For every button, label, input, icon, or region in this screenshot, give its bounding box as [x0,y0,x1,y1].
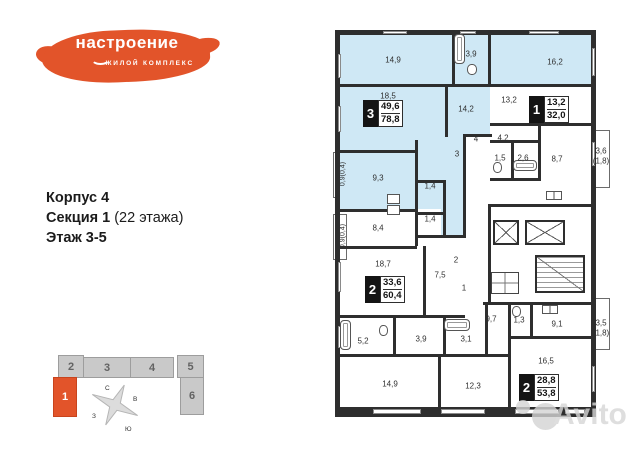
bedroom-top-left-label: 14,9 [385,56,401,65]
corridor-2-label: 2 [454,256,458,265]
room-9-3-label: 9,3 [372,174,383,183]
balcony-3-5-reduced-label: (1,8) [593,329,609,338]
building-diagram: 2 3 4 5 1 6 С В З Ю [35,348,220,428]
compass-icon: С В З Ю [85,378,145,434]
floor-plan: 3 49,6 78,8 1 13,2 32,0 2 33,6 60,4 2 28… [333,14,613,438]
areas: 28,8 53,8 [534,374,559,401]
floor-value: Этаж 3-5 [46,230,107,246]
wall [335,246,417,249]
complex-logo: настроение ЖИЛОЙ КОМПЛЕКС [38,20,216,92]
corridor-1-label: 1 [462,284,466,293]
floor-line: Этаж 3-5 [46,228,183,248]
avito-logo-dot-small [516,400,530,414]
appliance-icon [387,205,400,215]
areas: 33,6 60,4 [380,276,405,303]
living-area: 33,6 [383,277,402,290]
kitchen-8-7-label: 8,7 [551,155,562,164]
wall [335,354,510,357]
listing-image: настроение ЖИЛОЙ КОМПЛЕКС Корпус 4 Секци… [0,0,640,452]
living-area: 49,6 [381,101,400,114]
wall [530,302,533,339]
wall [485,305,488,357]
bathroom-top-label: 3,9 [465,50,476,59]
room-13-2-label: 13,2 [501,96,517,105]
complex-subtitle: ЖИЛОЙ КОМПЛЕКС [106,60,194,67]
section-note: (22 этажа) [110,210,183,226]
balcony-3-5-label: 3,5 [595,319,606,328]
utility-shaft [491,272,519,294]
compass-south: Ю [125,426,132,433]
compass-north: С [105,385,110,392]
wall [508,336,596,339]
room-top-right-label: 16,2 [547,58,563,67]
bathtub-icon [444,319,470,331]
bathtub-icon [340,320,351,350]
rooms-count: 1 [529,96,544,123]
apartment-badge-2room-b: 2 28,8 53,8 [519,374,559,401]
total-area: 78,8 [381,114,400,126]
room-9-7-label: 9,7 [485,315,496,324]
window-mark [338,106,341,132]
wall [423,246,426,318]
section-1-highlighted: 1 [53,377,77,417]
location-info: Корпус 4 Секция 1 (22 этажа) Этаж 3-5 [46,188,183,248]
areas: 49,6 78,8 [378,100,403,127]
section-4: 4 [130,357,174,378]
window-mark [373,409,421,414]
kitchen-9-1-label: 9,1 [551,320,562,329]
balcony-3-6-label: 3,6 [595,147,606,156]
window-mark [441,409,485,414]
window-mark [338,54,341,78]
room-16-5-label: 16,5 [538,357,554,366]
elevator-1 [493,220,519,245]
section-2: 2 [58,355,84,378]
bath-2-6-label: 2,6 [517,154,528,163]
staircase [535,255,585,293]
section-3: 3 [83,357,131,378]
stove-icon [542,305,558,314]
window-mark [338,262,341,292]
section-value: Секция 1 [46,210,110,226]
total-area: 32,0 [547,110,566,122]
wall [488,30,491,87]
wc-1-5-label: 1,5 [494,154,505,163]
wall [393,315,396,357]
stove-icon [546,191,562,200]
section-line: Секция 1 (22 этажа) [46,208,183,228]
elevator-2 [525,220,565,245]
appliance-icon [387,194,400,204]
wall [538,123,541,181]
toilet-icon [379,325,388,336]
wc-1-4-b-label: 1,4 [424,215,435,224]
apartment-badge-1room: 1 13,2 32,0 [529,96,569,123]
corridor-3-label: 3 [455,150,459,159]
toilet-icon [467,64,477,75]
wall [335,209,417,212]
toilet-icon [493,162,502,173]
rooms-count: 2 [519,374,534,401]
wc-1-4-a-label: 1,4 [424,182,435,191]
hall-4-label: 4 [474,135,478,144]
section-6: 6 [180,377,204,415]
corpus-value: Корпус 4 [46,190,109,206]
wall [490,178,538,181]
section-5: 5 [177,355,204,378]
wall [438,354,441,407]
total-area: 60,4 [383,290,402,302]
corpus-line: Корпус 4 [46,188,183,208]
balcony-3-6-reduced-label: (1,8) [593,157,609,166]
balcony-0-9-b-label: 0,9(0,4) [340,224,347,248]
wall [488,204,596,207]
room-8-4-label: 8,4 [372,224,383,233]
window-mark [529,31,559,34]
bath-5-2-label: 5,2 [357,337,368,346]
hall-7-5-label: 7,5 [434,271,445,280]
areas: 13,2 32,0 [544,96,569,123]
window-mark [592,366,595,392]
apartment-badge-2room-a: 2 33,6 60,4 [365,276,405,303]
window-mark [383,31,407,34]
avito-watermark: Avito [516,400,627,430]
wall [508,302,511,407]
hall-3-9-label: 3,9 [415,335,426,344]
bath-3-1-label: 3,1 [460,335,471,344]
wall [415,235,466,238]
wc-1-3-label: 1,3 [513,316,524,325]
room-14-9-bottom-label: 14,9 [382,380,398,389]
wall [490,123,596,126]
wall [483,302,596,305]
room-12-3-label: 12,3 [465,382,481,391]
bathtub-icon [454,34,465,64]
wall [415,140,418,246]
balcony-0-9-a-label: 0,9(0,4) [340,162,347,186]
living-area: 13,2 [547,97,566,110]
hall-14-2-label: 14,2 [458,105,474,114]
avito-watermark-text: Avito [553,400,627,430]
apartment-badge-3room: 3 49,6 78,8 [363,100,403,127]
wall [335,84,593,87]
wall [463,134,466,235]
complex-name: настроение [38,33,216,53]
wall [335,150,417,153]
window-mark [592,48,595,76]
wall [591,30,596,417]
rooms-count: 2 [365,276,380,303]
compass-east: В [133,396,137,403]
hall-4-2-label: 4,2 [497,134,508,143]
wall [443,180,446,238]
wall [445,84,448,137]
living-area: 28,8 [537,375,556,388]
rooms-count: 3 [363,100,378,127]
room-18-7-label: 18,7 [375,260,391,269]
compass-west: З [92,413,96,420]
